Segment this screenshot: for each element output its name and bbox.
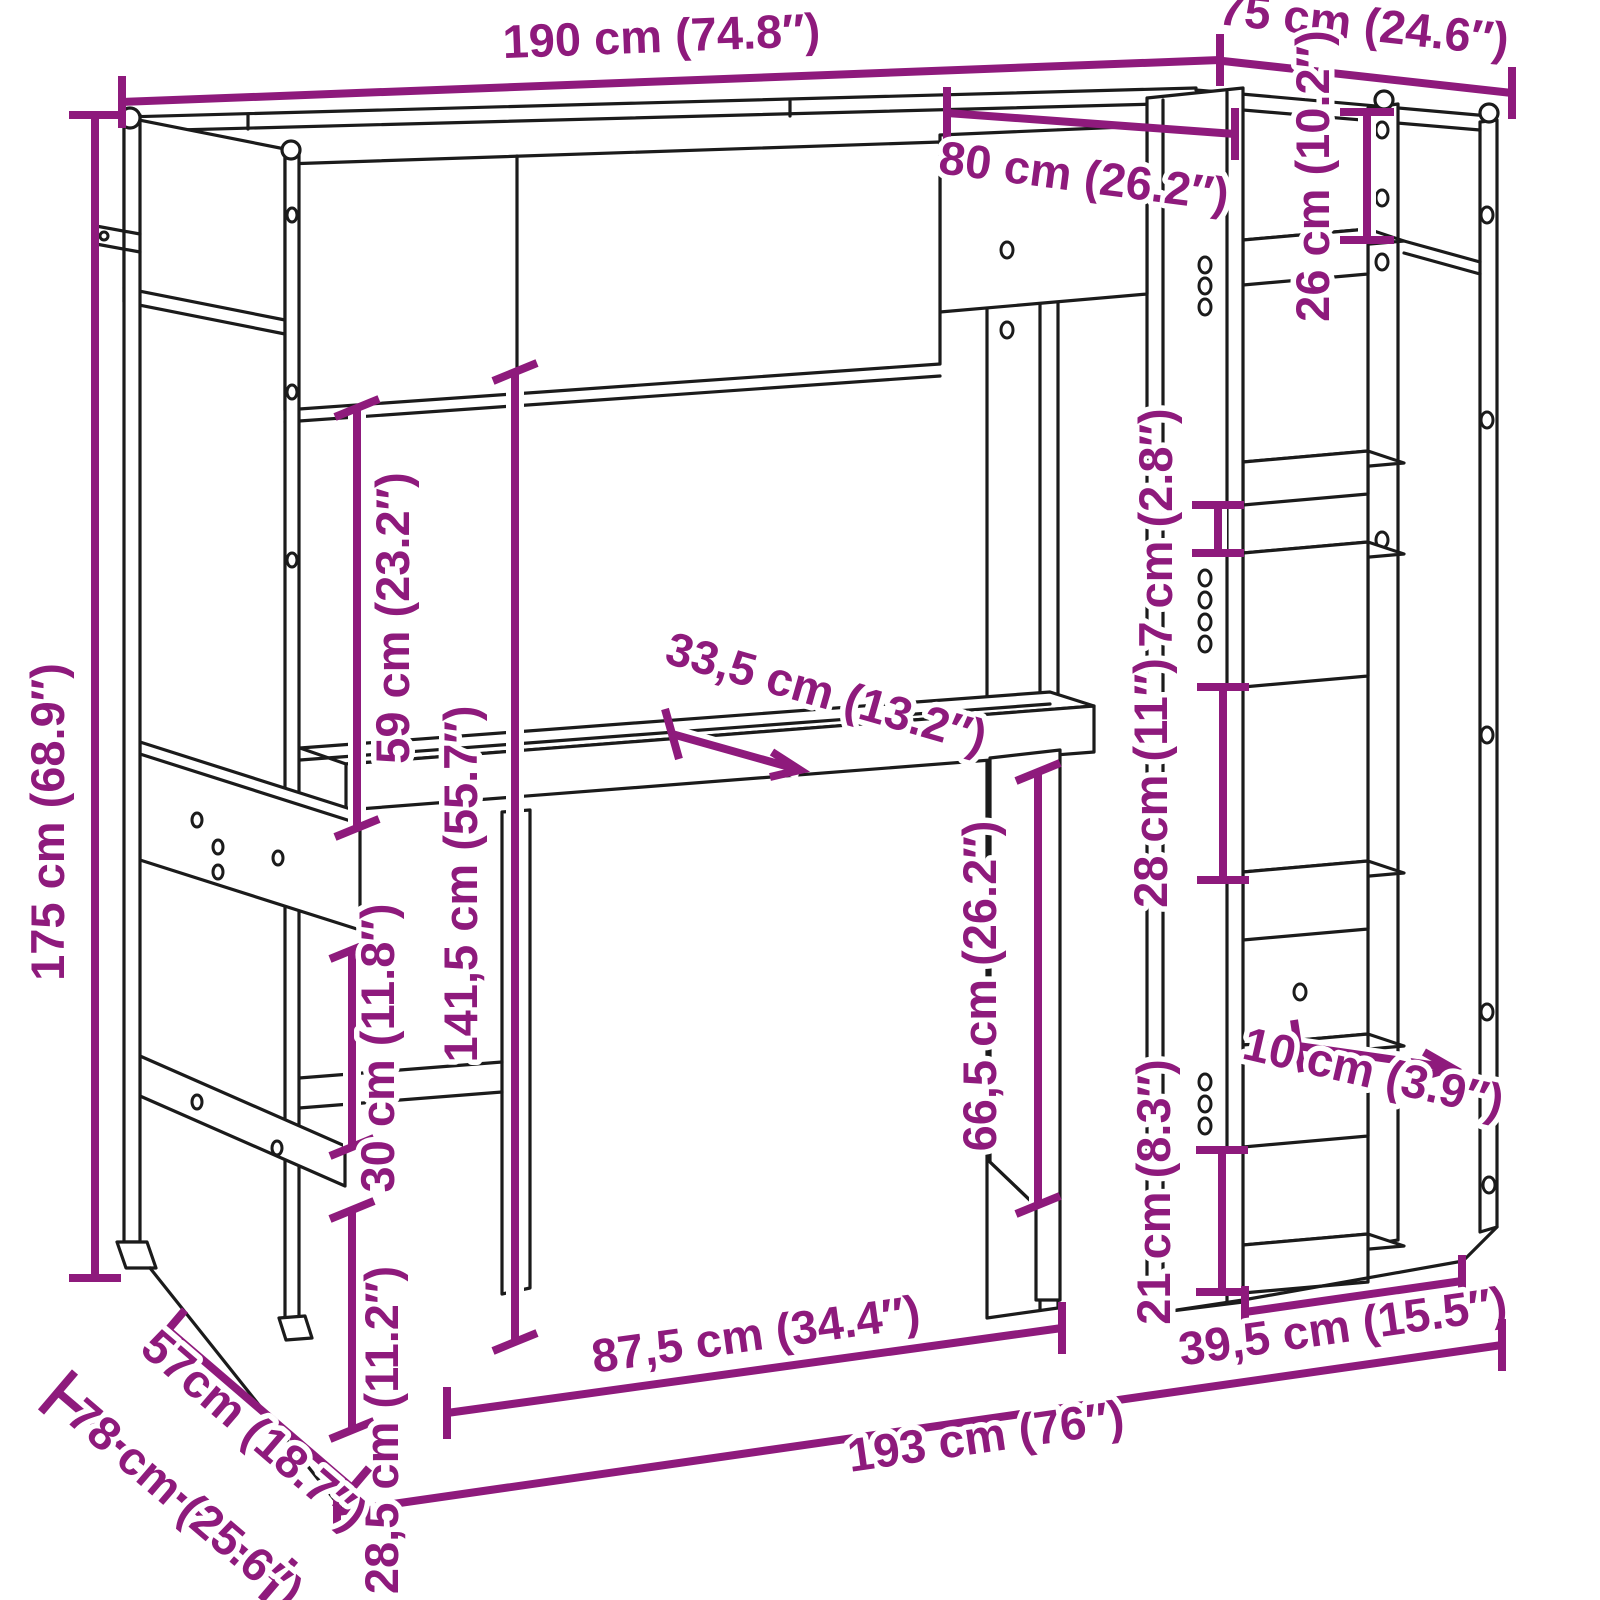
- corner-knob: [1375, 91, 1393, 109]
- dim-label-top-shelf-gap: 26 cm (10.2″): [1286, 30, 1339, 322]
- dim-label-bottom-shelf-gap: 21 cm (8.3″): [1127, 1059, 1180, 1324]
- loft-bed-dimension-diagram: 190 cm (74.8″) 75 cm (24.6″) 80 cm (26.2…: [0, 0, 1600, 1600]
- corner-knob: [282, 141, 300, 159]
- corner-knob: [1480, 104, 1498, 122]
- wall-bracket-hole: [100, 232, 108, 240]
- dim-label-clearance-above-desk: 59 cm (23.2″): [366, 472, 419, 764]
- dim-label-height-under-bed: 141,5 cm (55.7″): [434, 706, 487, 1063]
- dim-label-lower-board-height: 28,5 cm (11.2″): [355, 1266, 408, 1594]
- dim-label-overall-height: 175 cm (68.9″): [21, 663, 74, 981]
- dim-label-middle-shelf-gap: 28 cm (11″): [1124, 658, 1177, 908]
- diagram-page: 190 cm (74.8″) 75 cm (24.6″) 80 cm (26.2…: [0, 0, 1600, 1600]
- dim-label-lower-board-gap: 30 cm (11.8″): [351, 903, 404, 1192]
- dim-label-clearance-under-desk: 66,5 cm (26.2″): [953, 821, 1006, 1152]
- headboard-left-side: [124, 117, 285, 334]
- dim-label-small-shelf-gap: 7 cm (2.8″): [1129, 408, 1182, 647]
